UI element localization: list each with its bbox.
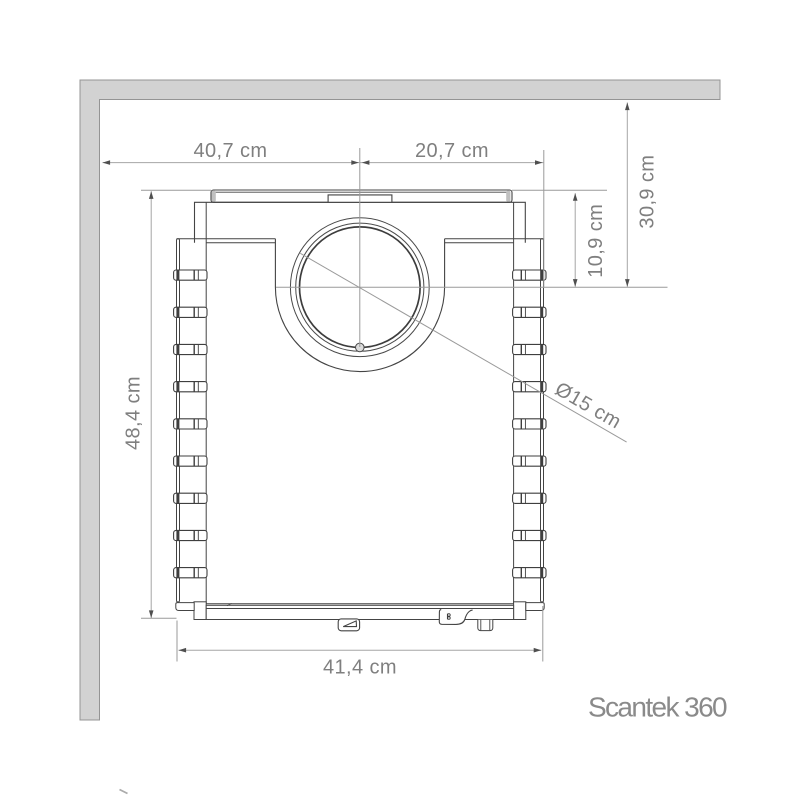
svg-text:30,9 cm: 30,9 cm xyxy=(637,155,659,229)
svg-text:48,4 cm: 48,4 cm xyxy=(123,376,145,450)
svg-text:Scantek 360: Scantek 360 xyxy=(588,692,727,723)
svg-text:41,4 cm: 41,4 cm xyxy=(323,657,397,679)
svg-text:20,7 cm: 20,7 cm xyxy=(415,140,489,162)
svg-text:40,7 cm: 40,7 cm xyxy=(194,140,268,162)
svg-text:10,9 cm: 10,9 cm xyxy=(585,204,607,278)
